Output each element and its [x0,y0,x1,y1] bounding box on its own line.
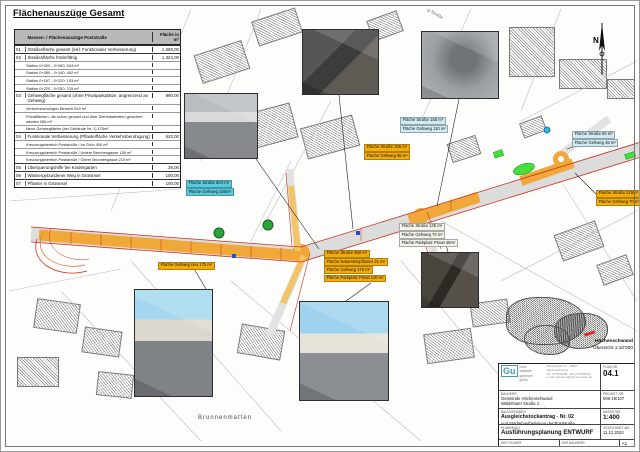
firm-contact: Hauptstraße 14 · 79862 Höchenschwand Tel… [547,365,598,380]
photo-street-south [299,301,389,401]
photo-asphalt-damage [421,252,479,308]
table-subrow: Kreuzungsbereich Poststraße / Obere Brun… [15,155,180,163]
table-row: 02Straßenfläche förderfähig1.324,00 [15,53,180,61]
table-subrow: Kreuzungsbereich Poststraße / Untere Bru… [15,148,180,156]
area-table: Massen- / Flächenauszüge Poststraße Fläc… [14,29,181,188]
date-value: 11.12.2020 [603,430,624,435]
district-label: Brunnenmatten [198,415,252,421]
firm-line3: gutmann gmbh [520,374,533,382]
table-subrow: Privatflächen, die schon genutzt und übe… [15,112,180,125]
table-subrow: Station 0+220 - 0+250: 215 m² [15,84,180,92]
table-subrow: Neue Gehwegfläche (bei Gebäude Nr. 1) 17… [15,125,180,133]
projekt-number: 006-19/107 [603,396,624,401]
area-callout: Fläche Straße 504 m²Fläche Gehweg 230m² [186,180,234,196]
firm-name-lines: heitz wäschle gutmann gmbh [520,365,542,382]
area-callout: Fläche Straße 155 m²Fläche Gehweg 110 m² [400,117,448,133]
area-callout: Fläche Straße 135 m²Fläche Gehweg 70 m²F… [399,223,458,247]
overview-caption: Höchenschwand Übersicht 1:10'000 [593,339,633,352]
plan-sheet: Flächenauszüge Gesamt Massen- / Flächena… [0,0,640,452]
photo-street-existing [184,93,258,159]
area-table-header: Massen- / Flächenauszüge Poststraße Fläc… [15,30,180,45]
table-subrow: Station 0+000 - 0+080: 504 m² [15,61,180,69]
photo-asphalt-crack [302,29,379,95]
north-letter: N [593,36,599,45]
header-label-col: Massen- / Flächenauszüge Poststraße [28,35,153,40]
plan-content: Ausführungsplanung ENTWURF [501,430,598,436]
scale-value: 1:400 [603,414,620,421]
photo-street-west [134,289,213,397]
north-arrow: N [587,21,613,79]
table-subrow: Kreuzungsbereich Poststraße / Im Grün 45… [15,140,180,148]
area-callout: Fläche Straße 155 m²Fläche Gehweg 85 m² [364,144,410,160]
title-block: Gu heitz wäschle gutmann gmbh Hauptstraß… [498,363,635,447]
bauherr-sig-label: Der Bauherr [562,441,618,445]
sheet-format: A1 [622,441,627,446]
overview-town-name: Höchenschwand [593,339,633,346]
firm-logo: Gu [501,365,518,377]
area-table-rows: 01Straßenfläche gesamt (inkl. Funktional… [15,45,180,187]
table-subrow: Station 0+167 - 0+220: 193 m² [15,76,180,84]
photo-asphalt-shadows [421,31,499,99]
vorhaben-line2: und Städtebauförderung der Poststraße [501,421,598,425]
overview-town-hatch [524,325,570,355]
overview-scale: Übersicht 1:10'000 [593,346,633,353]
area-callout: Fläche Straße 215m²Fläche Gehweg 70m² [596,190,640,206]
table-row: 05Überquerungshilfe bei Kindergarten36,0… [15,163,180,171]
overview-map: Höchenschwand Übersicht 1:10'000 [500,295,633,361]
firm-email: e-mail: gutmann@gutmann-plan.de [547,375,592,379]
area-callout: Fläche Straße 450 m²Fläche Natursteinpfl… [324,250,388,282]
table-row: 03Gehwegfläche gesamt (ohne Privatparkpl… [15,91,180,104]
bauherr-city: 79862 Höchenschwand [501,407,598,408]
table-subrow: Station 0+080 - 0+140: 492 m² [15,69,180,77]
area-callout: Fläche Gehweg neu 175 m² [158,262,215,270]
firm-identity: Gu heitz wäschle gutmann gmbh Hauptstraß… [501,365,598,382]
page-title: Flächenauszüge Gesamt [13,8,124,19]
table-row: 01Straßenfläche gesamt (inkl. Funktional… [15,45,180,53]
planer-sig-label: Der Planer [501,441,557,445]
table-subrow: Verkehrsberuhigter Bereich 519 m² [15,104,180,112]
area-callout: Fläche Straße 55 m²Fläche Gehweg 45 m² [572,131,618,147]
table-row: 04Funktionale Verbesserung (Pflasterfläc… [15,132,180,140]
header-value-col: Fläche in m² [152,32,179,42]
plan-number: 04.1 [603,369,619,378]
table-row: 06Wassergebundener Weg in Grüninsel100,0… [15,171,180,179]
north-needle-icon [587,21,613,79]
table-row: 07Pflaster in Grüninsel100,00 [15,179,180,187]
